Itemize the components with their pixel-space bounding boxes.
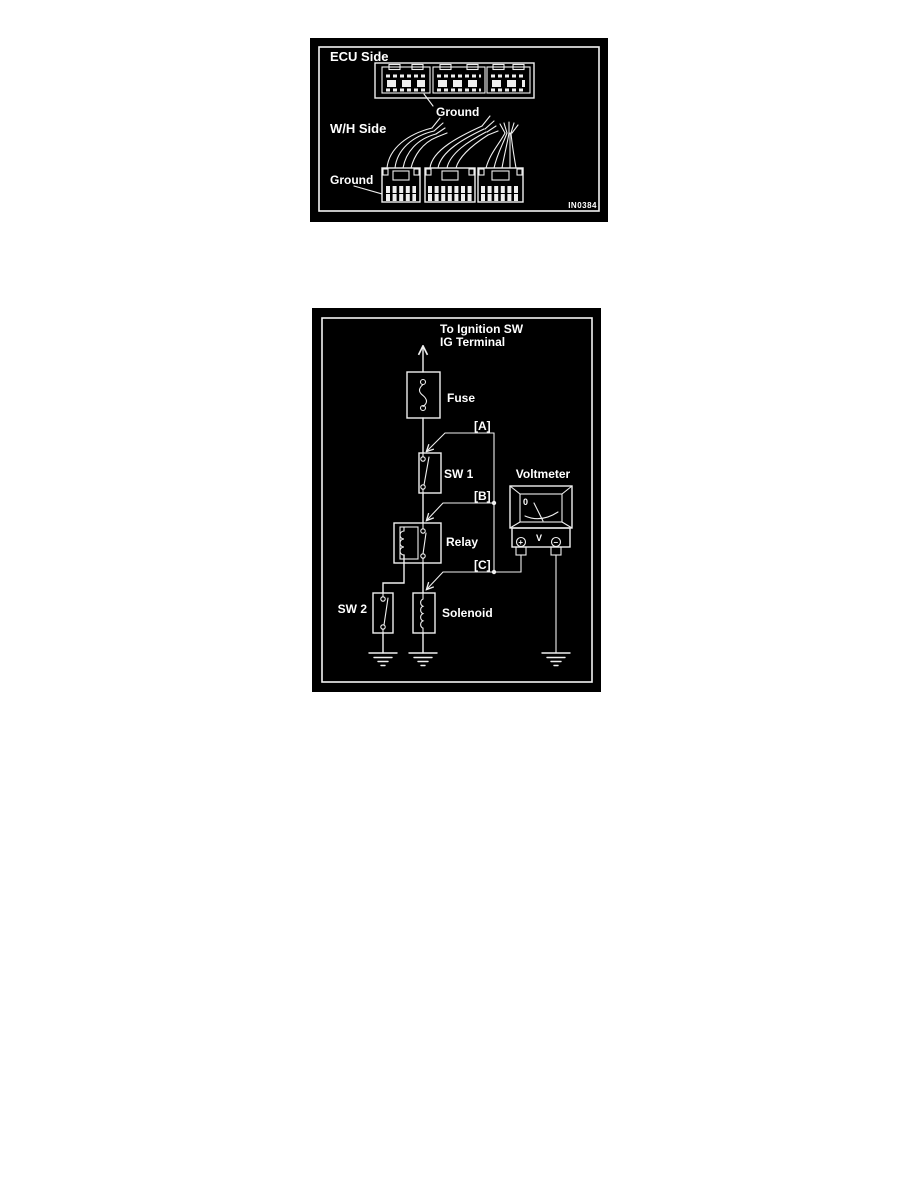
ignition-header-line2: IG Terminal — [440, 335, 505, 349]
fuse-label: Fuse — [447, 391, 475, 405]
minus-terminal-label: − — [553, 538, 558, 547]
point-a-label: [A] — [474, 419, 491, 433]
ground-symbol-sw2 — [369, 653, 397, 666]
solenoid-label: Solenoid — [442, 606, 493, 620]
point-c-pointer — [427, 572, 521, 589]
ground-symbol-voltmeter — [542, 653, 570, 666]
junction-dot-c — [492, 570, 496, 574]
ground-label-bottom: Ground — [330, 173, 373, 187]
ecu-side-label: ECU Side — [330, 49, 389, 64]
sw1-label: SW 1 — [444, 467, 474, 481]
point-b-label: [B] — [474, 489, 491, 503]
connector-figure-canvas: ECU Side — [310, 38, 608, 222]
ground-label-top: Ground — [436, 105, 479, 119]
circuit-figure-canvas: To Ignition SW IG Terminal Fuse [A] — [312, 308, 601, 692]
ecu-connector-drawing — [375, 63, 534, 98]
wh-connectors-drawing — [382, 168, 523, 202]
sw2-label: SW 2 — [338, 602, 368, 616]
point-c-label: [C] — [474, 558, 491, 572]
ignition-header-line1: To Ignition SW — [440, 322, 524, 336]
ground-leader-bottom — [354, 186, 382, 194]
ground-symbol-solenoid — [409, 653, 437, 666]
plus-terminal-label: + — [518, 538, 523, 547]
sw1-symbol — [419, 453, 441, 493]
solenoid-symbol — [413, 593, 435, 633]
relay-symbol — [394, 523, 441, 563]
wh-side-label: W/H Side — [330, 121, 386, 136]
point-a-pointer — [427, 433, 494, 451]
figure-code: IN0384 — [568, 201, 597, 210]
junction-dot-b — [492, 501, 496, 505]
wire-harness-bundles — [387, 116, 518, 168]
meter-unit-label: V — [536, 533, 542, 543]
voltmeter-label: Voltmeter — [516, 467, 571, 481]
connector-ground-figure: ECU Side — [310, 38, 608, 222]
ground-leader-top — [424, 94, 433, 106]
meter-zero-label: 0 — [523, 497, 528, 507]
sw2-symbol — [373, 593, 393, 633]
voltmeter-circuit-figure: To Ignition SW IG Terminal Fuse [A] — [312, 308, 601, 692]
relay-label: Relay — [446, 535, 478, 549]
figure-inner-border — [322, 318, 592, 682]
fuse-symbol — [407, 372, 440, 418]
point-b-pointer — [427, 503, 494, 520]
